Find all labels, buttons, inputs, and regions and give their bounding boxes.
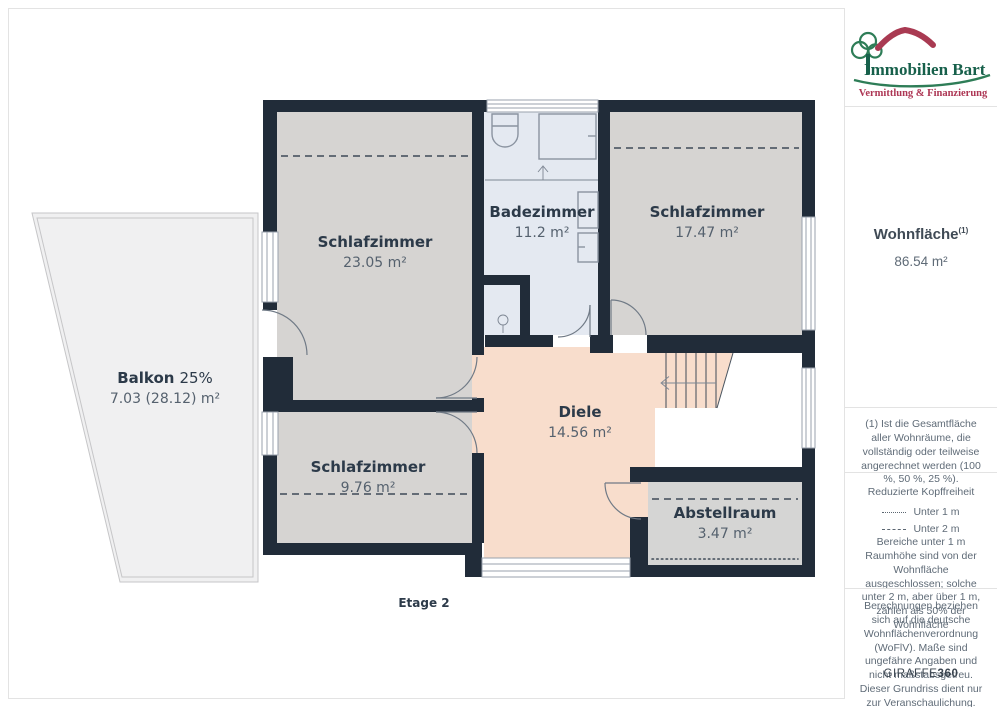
headroom-legend-under-1m: Unter 1 m (845, 506, 997, 518)
room-area: 11.2 m² (515, 225, 570, 241)
room-label: Balkon25% (117, 369, 213, 387)
room-area: 23.05 m² (343, 255, 407, 271)
company-logo: Immobilien Bart Vermittlung & Finanzieru… (845, 20, 997, 102)
living-area-footnote: (1) Ist die Gesamtfläche aller Wohnräume… (845, 418, 997, 487)
info-sidebar: Immobilien Bart Vermittlung & Finanzieru… (844, 8, 997, 699)
window-bed2-east (802, 217, 815, 330)
room-label: Diele (558, 403, 601, 421)
floorplan-sheet: Schlafzimmer 23.05 m² Badezimmer 11.2 m²… (0, 0, 1000, 707)
disclaimer-text: Berechnungen beziehen sich auf die deuts… (845, 600, 997, 707)
sidebar-divider (845, 407, 997, 408)
room-label: Schlafzimmer (650, 203, 765, 221)
room-area: 17.47 m² (675, 225, 739, 241)
brand-title: Immobilien Bart (864, 60, 986, 79)
room-floor-abstellraum (648, 482, 802, 565)
room-floor-diele (484, 347, 655, 560)
dotted-line-icon (882, 512, 906, 513)
window-stairs-east (802, 368, 815, 448)
floorplan-canvas: Schlafzimmer 23.05 m² Badezimmer 11.2 m²… (0, 0, 840, 707)
window-bed3-west (262, 412, 278, 455)
room-area: 14.56 m² (548, 425, 612, 441)
company-logo-icon: Immobilien Bart Vermittlung & Finanzieru… (848, 20, 994, 102)
sidebar-divider (845, 588, 997, 589)
room-label: Badezimmer (489, 203, 595, 221)
room-label: Schlafzimmer (311, 458, 426, 476)
dashed-line-icon (882, 529, 906, 530)
sidebar-divider (845, 472, 997, 473)
window-diele-south (482, 558, 630, 577)
room-area: 9.76 m² (341, 480, 396, 496)
window-bath-north (487, 100, 598, 112)
room-floor-badezimmer (484, 112, 598, 335)
room-area: 3.47 m² (698, 526, 753, 542)
room-area: 7.03 (28.12) m² (110, 391, 220, 407)
room-label: Schlafzimmer (318, 233, 433, 251)
window-bed1-west (262, 232, 278, 302)
room-floor-schlafzimmer-2 (610, 112, 802, 335)
living-area-label: Wohnfläche(1) (845, 226, 997, 243)
sidebar-divider (845, 106, 997, 107)
floor-label: Etage 2 (398, 596, 449, 610)
room-floor-schlafzimmer-3 (277, 412, 472, 543)
room-label: Abstellraum (674, 504, 777, 522)
giraffe360-logo: GIRAFFE360 (845, 668, 997, 680)
living-area-footnote-ref: (1) (958, 226, 968, 235)
roof-icon (878, 30, 933, 48)
living-area-value: 86.54 m² (845, 254, 997, 269)
headroom-title: Reduzierte Kopffreiheit (845, 486, 997, 498)
brand-subtitle: Vermittlung & Finanzierung (859, 88, 988, 99)
headroom-legend-under-2m: Unter 2 m (845, 523, 997, 535)
